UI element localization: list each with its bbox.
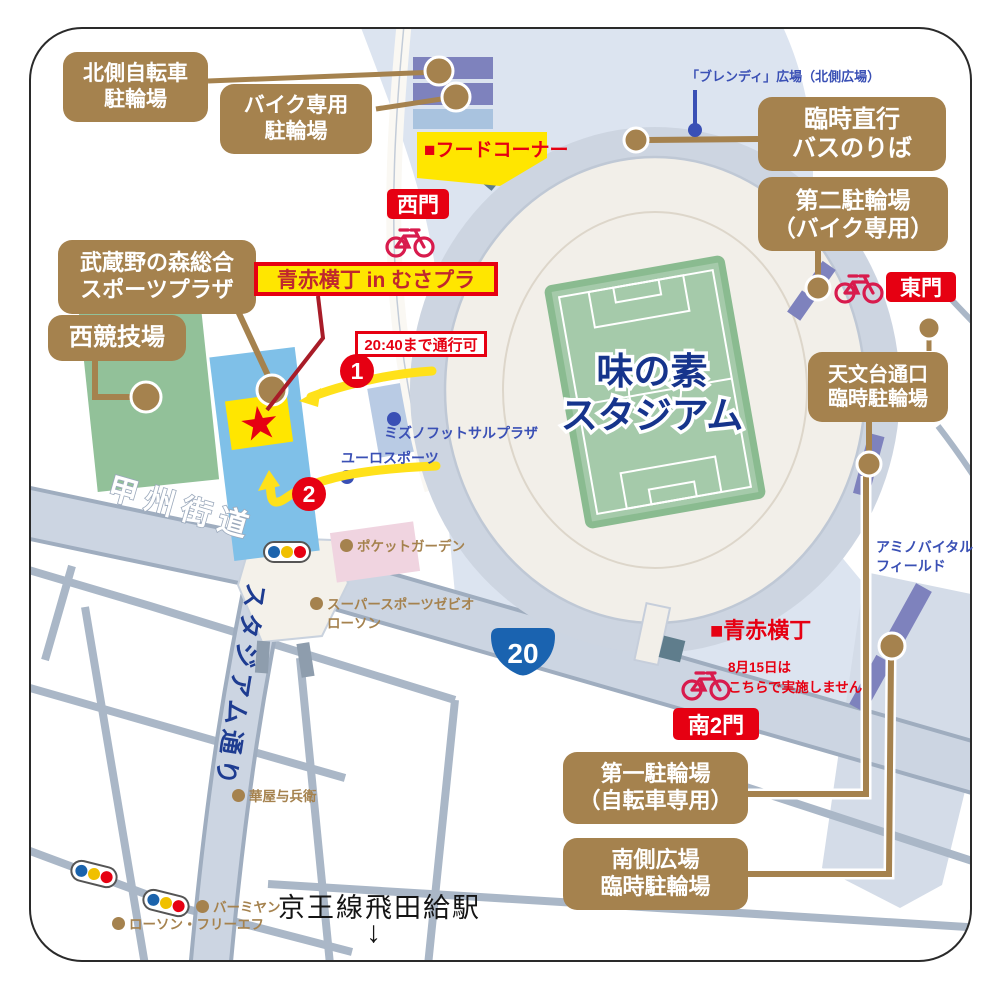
svg-text:スタジアム: スタジアム	[561, 395, 743, 436]
gate-east-badge: 東門	[886, 272, 956, 302]
pocket-garden-label: ポケットガーデン	[340, 538, 465, 557]
poi-dot-icon	[112, 917, 125, 930]
traffic-light-icon	[264, 542, 310, 562]
mizuno-futsal-label: ミズノフットサルプラザ	[384, 424, 538, 443]
amino-vital-field-label: アミノバイタル フィールド	[876, 538, 973, 576]
label-temp-bus-stop: 臨時直行 バスのりば	[758, 97, 946, 171]
label-west-stadium: 西競技場	[48, 315, 186, 361]
aug15-note: 8月15日は こちらで実施しません	[728, 658, 862, 699]
label-second-parking: 第二駐輪場 （バイク専用）	[758, 177, 948, 251]
stadium-field	[547, 259, 762, 526]
route-marker-1: 1	[340, 354, 374, 388]
svg-text:20: 20	[507, 638, 538, 669]
station-direction-arrow: ↓	[366, 916, 381, 950]
food-corner-label: ■フードコーナー	[424, 135, 568, 162]
poi-dot-icon	[196, 900, 209, 913]
stadium-area-map: ★	[0, 0, 1000, 990]
route-marker-2: 2	[292, 477, 326, 511]
poi-dot-icon	[340, 539, 353, 552]
label-bike-only-parking: バイク専用 駐輪場	[220, 84, 372, 154]
label-south-plaza-parking: 南側広場 臨時駐輪場	[563, 838, 748, 910]
label-north-bicycle-parking: 北側自転車 駐輪場	[63, 52, 208, 122]
poi-dot-icon	[310, 597, 323, 610]
poi-dot-icon	[232, 789, 245, 802]
yokocho-label: ■青赤横丁	[710, 613, 811, 645]
hanaya-label: 華屋与兵衛	[232, 788, 317, 807]
svg-text:味の素: 味の素	[597, 351, 708, 392]
label-first-parking: 第一駐輪場 （自転車専用）	[563, 752, 748, 824]
euro-sports-label: ユーロスポーツ	[341, 449, 439, 468]
label-musashino-plaza: 武蔵野の森総合 スポーツプラザ	[58, 240, 256, 314]
gate-south2-badge: 南2門	[673, 708, 759, 740]
event-banner: 青赤横丁 in むさプラ	[254, 262, 498, 296]
blendy-plaza-label: 「ブレンディ」広場（北側広場）	[686, 68, 880, 86]
pass-until-note: 20:40まで通行可	[355, 331, 487, 357]
xebio-lawson-label: スーパースポーツゼビオ ローソン	[310, 596, 474, 634]
gate-west-badge: 西門	[387, 189, 449, 219]
label-observatory-parking: 天文台通口 臨時駐輪場	[808, 352, 948, 422]
lawson-ff-label: ローソン・フリーエフ	[112, 916, 264, 935]
